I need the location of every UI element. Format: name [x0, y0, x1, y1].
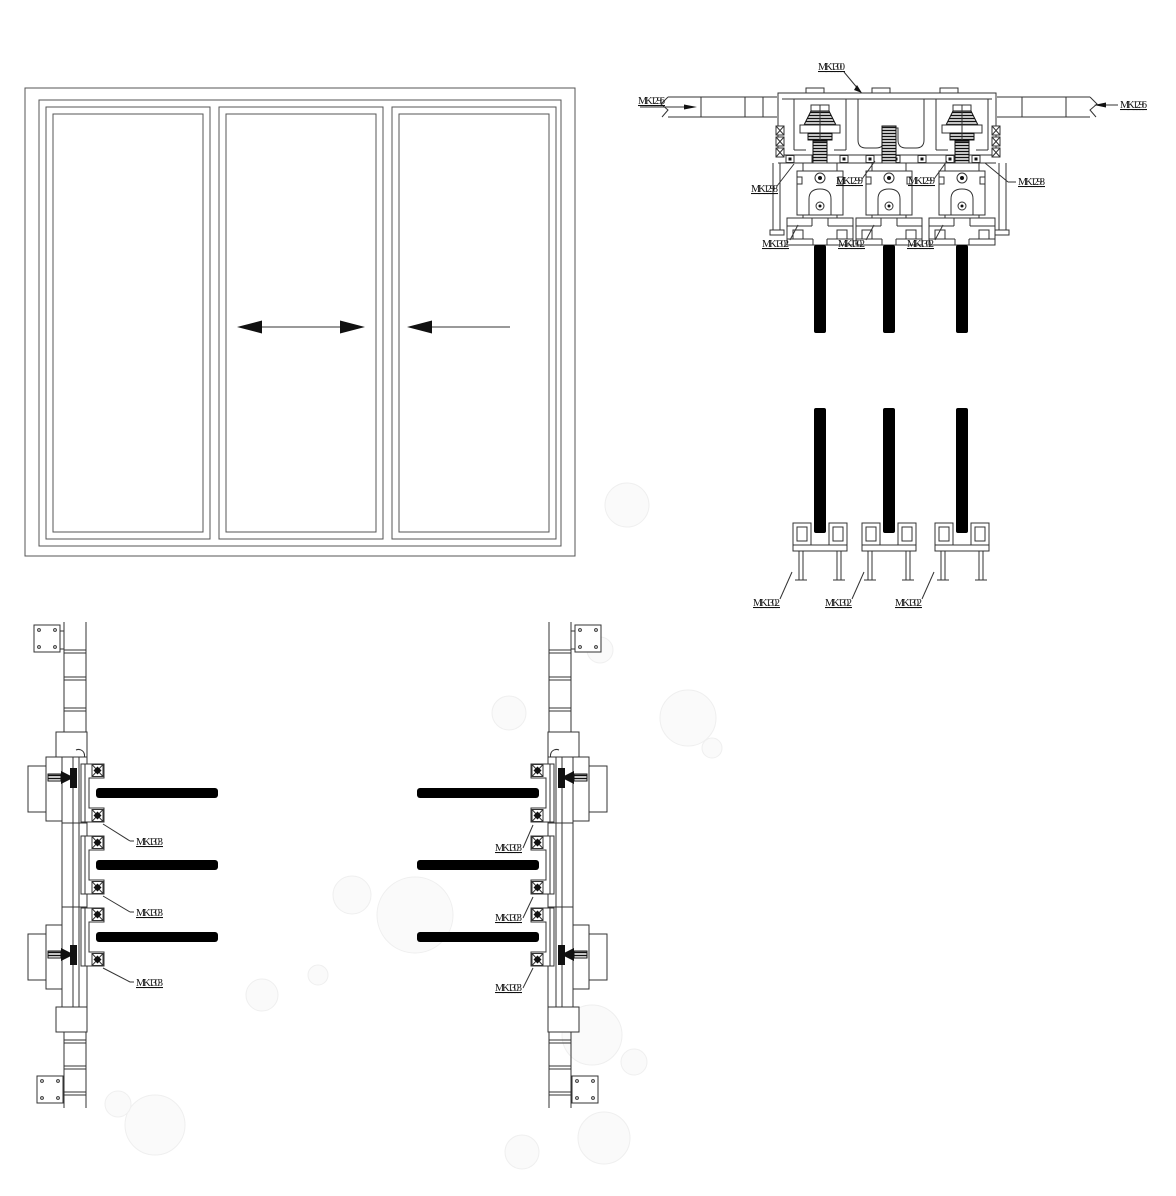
- door-panel-right: [392, 107, 556, 539]
- cad-drawing-canvas: MK1300 MK1296 MK1296 MK1298 MK1299 MK129…: [0, 0, 1176, 1196]
- glass-panel: [883, 245, 895, 333]
- label-mk1303-text: MK1303: [136, 978, 163, 989]
- label-mk1303-right-3: MK1303: [495, 968, 533, 994]
- label-mk1296-right: MK1296: [1094, 100, 1147, 111]
- label-mk1300: MK1300: [818, 62, 862, 93]
- jamb-section-left: MK1303 MK1303 MK1303: [28, 622, 218, 1108]
- label-mk1302-bottom-1: MK1302: [753, 572, 792, 609]
- cad-sheet: MK1300 MK1296 MK1296 MK1298 MK1299 MK129…: [0, 0, 1176, 1196]
- label-mk1303-right-1: MK1303: [495, 825, 533, 854]
- label-mk1299-left-text: MK1299: [836, 176, 863, 187]
- label-mk1298-right: MK1298: [985, 163, 1045, 188]
- glass-panel: [883, 408, 895, 533]
- slide-direction-arrow-double: [237, 321, 365, 334]
- glass-panel: [956, 408, 968, 533]
- label-mk1296-right-text: MK1296: [1120, 100, 1147, 111]
- outer-frame: [25, 88, 575, 556]
- jamb-return-right: [995, 163, 1009, 235]
- glass-panel: [814, 245, 826, 333]
- jamb-return-left: [770, 163, 784, 235]
- inner-frame: [39, 100, 561, 546]
- label-mk1300-text: MK1300: [818, 62, 845, 73]
- door-panel-left: [46, 107, 210, 539]
- label-mk1296-left-text: MK1296: [638, 96, 665, 107]
- watermark-bubbles: [105, 483, 722, 1169]
- label-mk1303-left-2: MK1303: [103, 896, 163, 919]
- label-mk1302-text: MK1302: [895, 598, 922, 609]
- label-mk1302-text: MK1302: [907, 239, 934, 250]
- frame-profile-right: [997, 97, 1097, 117]
- label-mk1303-right-2: MK1303: [495, 897, 533, 924]
- glass-panel: [956, 245, 968, 333]
- label-mk1302-bottom-2: MK1302: [825, 572, 864, 609]
- carriage-right: [939, 163, 985, 221]
- label-mk1298-left-text: MK1298: [751, 184, 778, 195]
- label-mk1303-left-1: MK1303: [103, 824, 163, 848]
- label-mk1302-text: MK1302: [838, 239, 865, 250]
- head-track-section-view: MK1300 MK1296 MK1296 MK1298 MK1299 MK129…: [638, 62, 1147, 609]
- glass-panel: [814, 408, 826, 533]
- label-mk1303-text: MK1303: [136, 837, 163, 848]
- door-panel-middle: [219, 107, 383, 539]
- slide-direction-arrow-left: [407, 321, 510, 334]
- label-mk1303-left-3: MK1303: [103, 968, 163, 989]
- label-mk1302-text: MK1302: [753, 598, 780, 609]
- label-mk1303-text: MK1303: [136, 908, 163, 919]
- label-mk1302-bottom-3: MK1302: [895, 572, 934, 609]
- label-mk1303-text: MK1303: [495, 913, 522, 924]
- label-mk1302-text: MK1302: [762, 239, 789, 250]
- label-mk1303-text: MK1303: [495, 983, 522, 994]
- carriage-left: [797, 163, 843, 221]
- sash-top-rail-right: [929, 218, 995, 245]
- label-mk1298-right-text: MK1298: [1018, 177, 1045, 188]
- label-mk1302-text: MK1302: [825, 598, 852, 609]
- carriage-middle: [866, 163, 912, 221]
- elevation-view: [25, 88, 575, 556]
- label-mk1299-right-text: MK1299: [908, 176, 935, 187]
- label-mk1303-text: MK1303: [495, 843, 522, 854]
